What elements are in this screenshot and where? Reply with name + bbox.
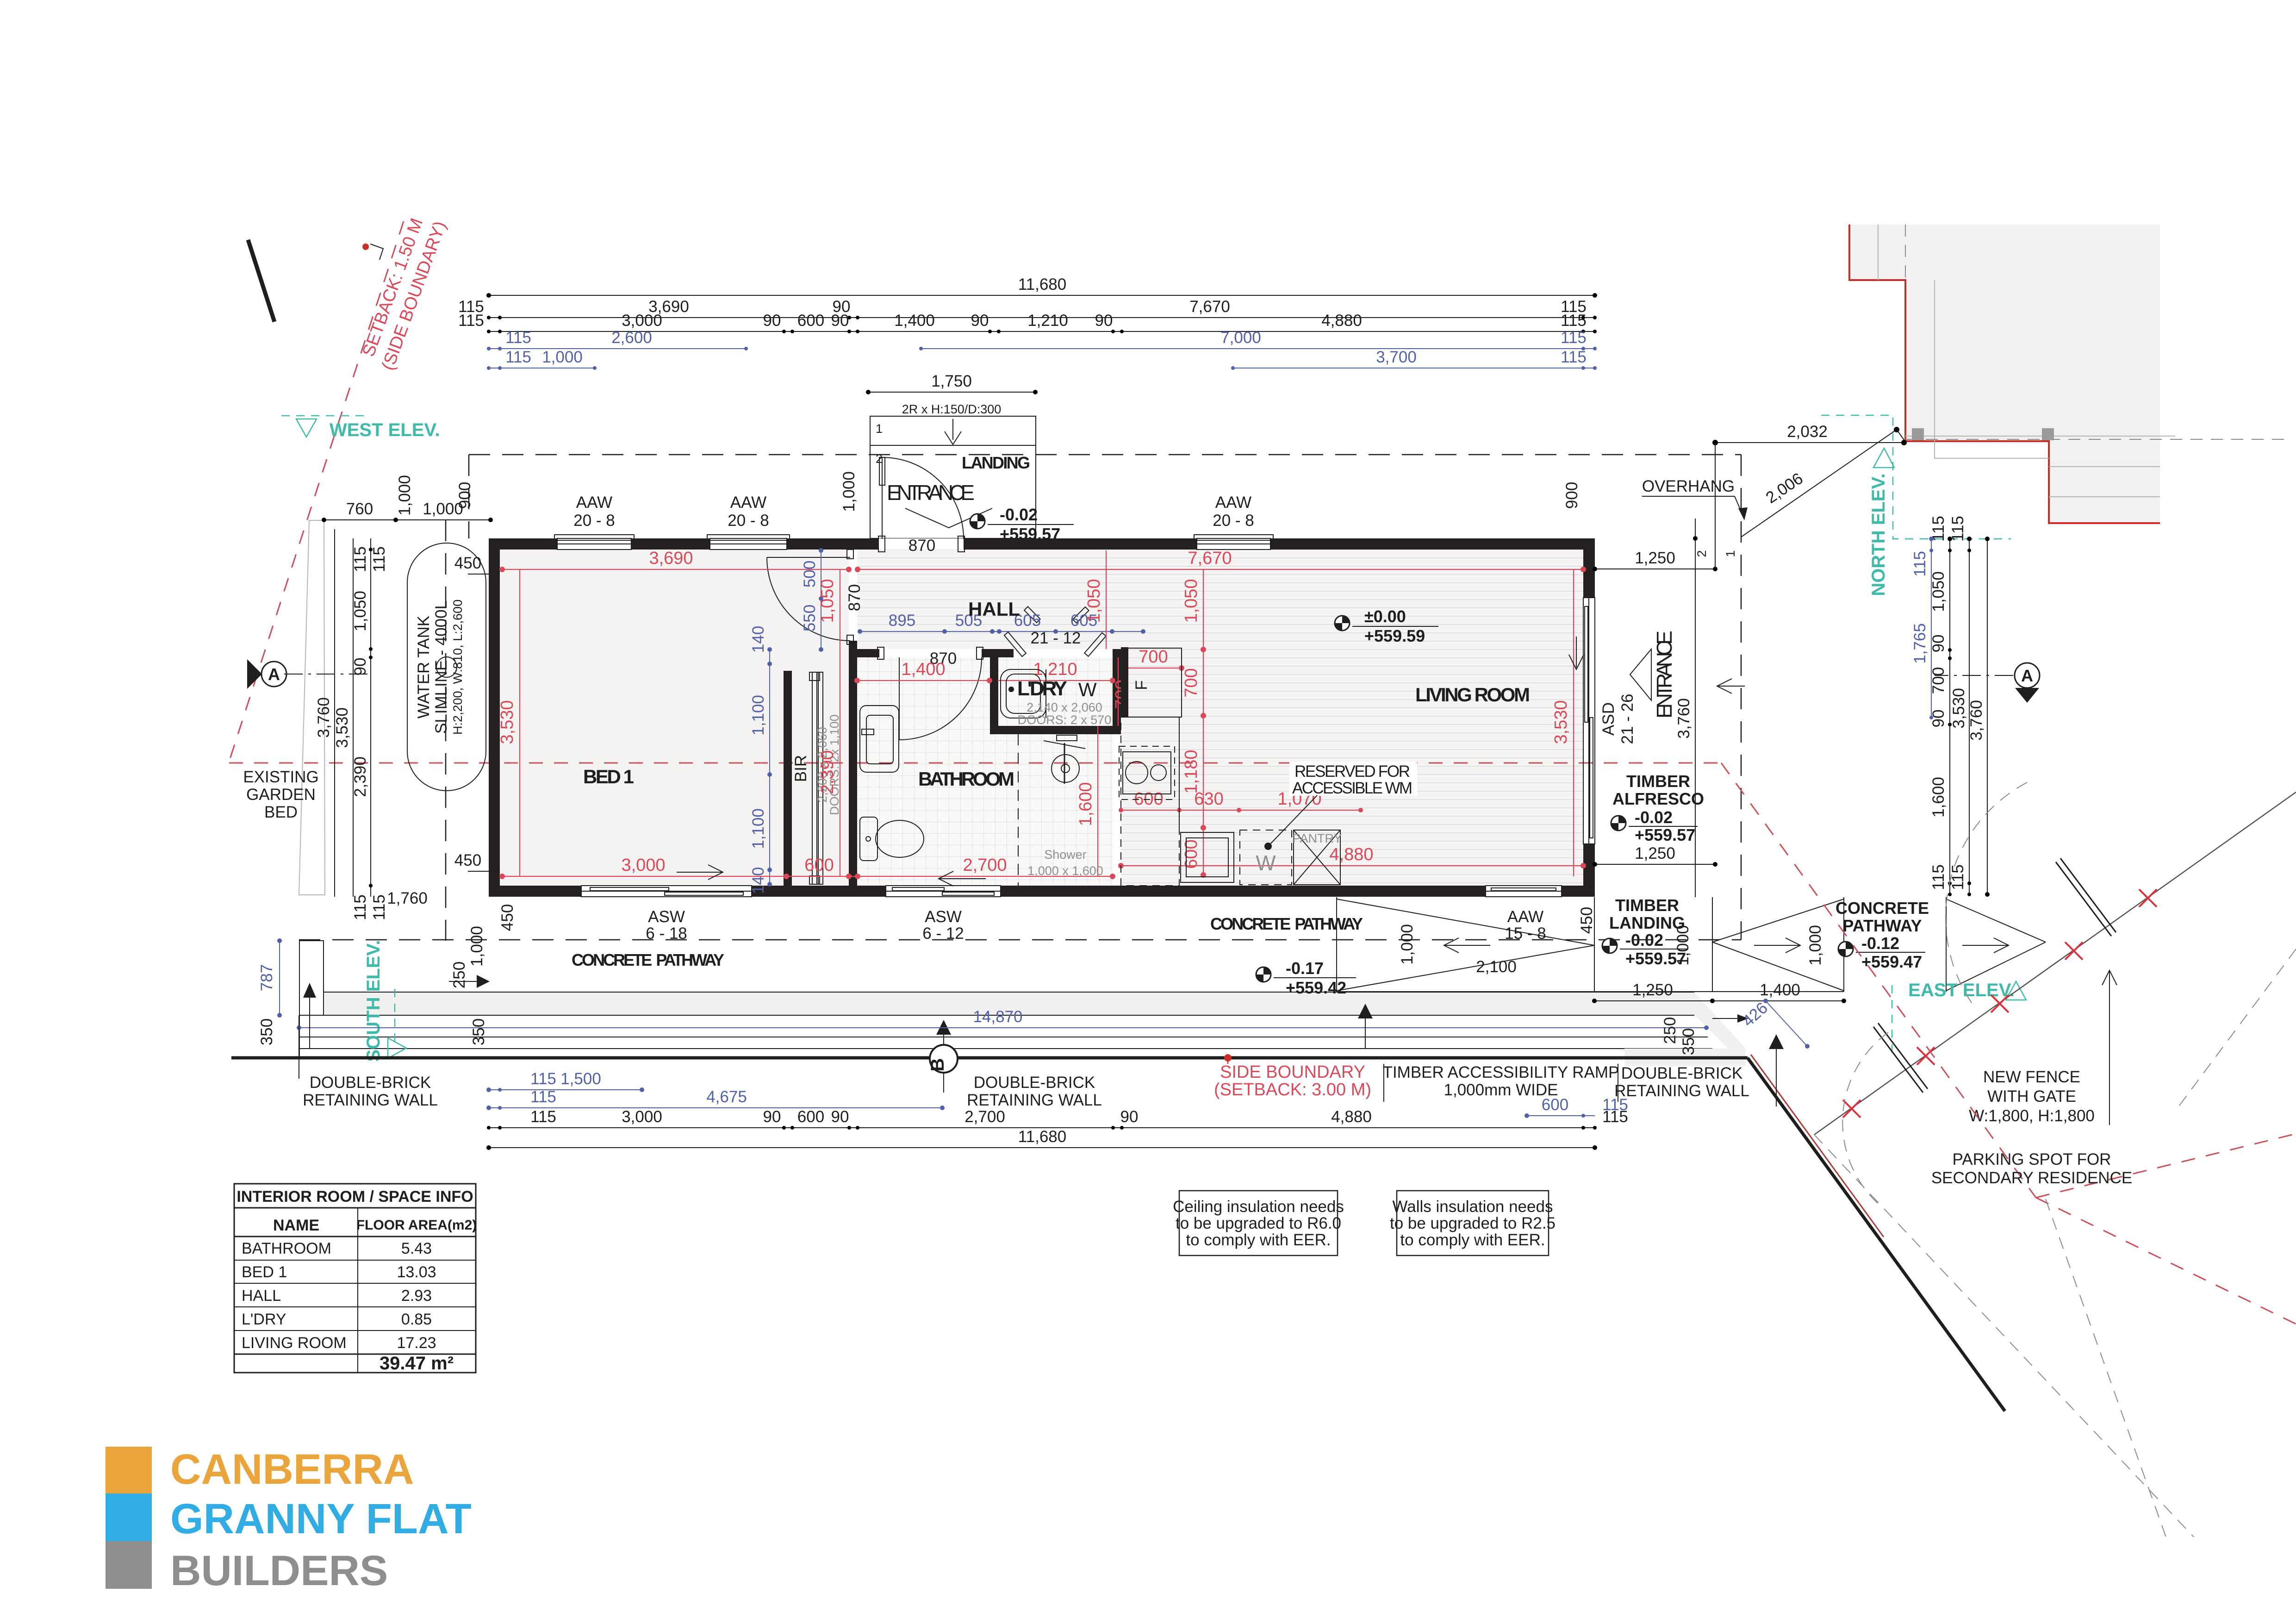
svg-text:2,390: 2,390 (351, 756, 369, 797)
svg-text:to comply with EER.: to comply with EER. (1186, 1231, 1331, 1249)
svg-text:11,680: 11,680 (1018, 275, 1066, 294)
svg-text:LIVING ROOM: LIVING ROOM (1415, 684, 1530, 706)
svg-text:600: 600 (1542, 1096, 1568, 1114)
svg-text:CONCRETE: CONCRETE (1836, 899, 1929, 918)
svg-text:INTERIOR ROOM / SPACE INFO: INTERIOR ROOM / SPACE INFO (236, 1188, 473, 1206)
svg-text:Ceiling insulation needs: Ceiling insulation needs (1173, 1198, 1344, 1216)
svg-text:11,680: 11,680 (1018, 1128, 1066, 1146)
svg-text:2: 2 (1695, 550, 1709, 557)
svg-text:250: 250 (1661, 1017, 1679, 1044)
svg-text:PARKING SPOT FOR: PARKING SPOT FOR (1953, 1150, 2111, 1168)
svg-text:1,765: 1,765 (1911, 623, 1929, 664)
svg-text:2,390: 2,390 (818, 750, 837, 794)
svg-text:1,210: 1,210 (1027, 312, 1068, 330)
svg-text:3,700: 3,700 (1376, 348, 1417, 366)
svg-text:600: 600 (797, 312, 824, 330)
svg-text:BED 1: BED 1 (583, 766, 634, 787)
svg-text:TIMBER: TIMBER (1626, 772, 1690, 791)
svg-text:115: 115 (1911, 551, 1929, 577)
svg-text:350: 350 (258, 1018, 276, 1045)
svg-text:ASW: ASW (925, 908, 962, 926)
svg-text:W:1,800, H:1,800: W:1,800, H:1,800 (1969, 1107, 2095, 1125)
svg-text:17.23: 17.23 (397, 1334, 436, 1352)
svg-text:1,000: 1,000 (423, 500, 463, 518)
svg-text:6 - 12: 6 - 12 (922, 924, 964, 943)
svg-text:1,400: 1,400 (901, 660, 945, 679)
svg-text:450: 450 (454, 554, 481, 572)
svg-text:870: 870 (846, 584, 864, 611)
svg-text:250: 250 (450, 962, 468, 988)
svg-text:115: 115 (1561, 329, 1587, 347)
svg-text:90: 90 (1095, 312, 1113, 330)
svg-text:2,700: 2,700 (964, 1108, 1005, 1126)
svg-text:4,880: 4,880 (1321, 312, 1362, 330)
svg-text:600: 600 (1182, 839, 1201, 868)
svg-text:350: 350 (1680, 1028, 1698, 1055)
svg-text:3,530: 3,530 (333, 707, 351, 748)
svg-text:1,180: 1,180 (1182, 750, 1201, 793)
svg-text:7,670: 7,670 (1189, 298, 1230, 316)
svg-text:A: A (268, 665, 280, 684)
svg-text:NAME: NAME (273, 1217, 319, 1234)
svg-text:3,760: 3,760 (1967, 700, 1985, 741)
svg-text:LIVING ROOM: LIVING ROOM (242, 1334, 347, 1352)
svg-text:90: 90 (831, 1108, 849, 1126)
svg-text:L'DRY: L'DRY (1017, 677, 1067, 700)
svg-text:TIMBER ACCESSIBILITY RAMP: TIMBER ACCESSIBILITY RAMP (1383, 1063, 1619, 1081)
svg-text:TIMBER: TIMBER (1615, 896, 1679, 915)
svg-text:0.85: 0.85 (401, 1311, 432, 1328)
svg-text:3,530: 3,530 (498, 700, 517, 744)
svg-text:-0.12: -0.12 (1861, 934, 1899, 953)
svg-text:LANDING: LANDING (962, 453, 1030, 472)
svg-text:1,400: 1,400 (894, 312, 935, 330)
svg-text:GRANNY FLAT: GRANNY FLAT (170, 1495, 472, 1543)
svg-text:115: 115 (505, 329, 531, 347)
svg-text:1,760: 1,760 (387, 889, 428, 907)
svg-text:3,760: 3,760 (315, 697, 333, 738)
svg-text:115: 115 (1949, 516, 1967, 542)
svg-text:CANBERRA: CANBERRA (170, 1446, 414, 1493)
svg-text:DOUBLE-BRICK: DOUBLE-BRICK (974, 1074, 1095, 1092)
svg-text:90: 90 (351, 658, 369, 676)
svg-text:3,690: 3,690 (649, 549, 693, 568)
svg-text:90: 90 (763, 1108, 781, 1126)
svg-text:700: 700 (1139, 647, 1168, 667)
svg-text:1,100: 1,100 (749, 695, 767, 736)
svg-text:SLIMLINE - 4000L: SLIMLINE - 4000L (432, 600, 450, 734)
svg-text:DOORS: 2 x 570: DOORS: 2 x 570 (1018, 713, 1112, 727)
svg-text:450: 450 (1578, 907, 1596, 934)
svg-text:7,000: 7,000 (1220, 329, 1261, 347)
svg-text:RESERVED FOR: RESERVED FOR (1294, 762, 1410, 781)
svg-text:HALL: HALL (242, 1287, 281, 1305)
svg-text:3,530: 3,530 (1950, 688, 1968, 729)
svg-text:1,250: 1,250 (1635, 844, 1675, 862)
svg-text:600: 600 (797, 1108, 824, 1126)
svg-text:1,600: 1,600 (1076, 782, 1095, 826)
svg-text:90: 90 (971, 312, 989, 330)
svg-text:AAW: AAW (576, 493, 612, 512)
svg-text:115: 115 (351, 546, 369, 572)
svg-text:115: 115 (1561, 312, 1587, 330)
svg-text:700: 700 (1182, 668, 1201, 697)
svg-text:CONCRETE PATHWAY: CONCRETE PATHWAY (572, 950, 724, 969)
svg-text:550: 550 (801, 605, 819, 631)
svg-text:1,000: 1,000 (542, 348, 583, 366)
svg-text:1,250: 1,250 (1632, 981, 1673, 999)
svg-text:760: 760 (346, 500, 373, 518)
svg-text:RETAINING WALL: RETAINING WALL (967, 1091, 1102, 1109)
svg-text:1,000: 1,000 (396, 475, 414, 516)
svg-text:1,600: 1,600 (1929, 777, 1948, 818)
svg-text:90: 90 (1929, 635, 1948, 653)
svg-text:BATHROOM: BATHROOM (918, 768, 1014, 790)
svg-text:AAW: AAW (1507, 908, 1543, 926)
svg-text:HALL: HALL (968, 598, 1020, 620)
svg-text:115: 115 (1929, 864, 1948, 890)
svg-text:+559.42: +559.42 (1286, 978, 1346, 997)
svg-text:+559.59: +559.59 (1364, 626, 1425, 645)
svg-text:W: W (1256, 851, 1276, 875)
svg-text:1,050: 1,050 (818, 579, 837, 623)
svg-text:ALFRESCO: ALFRESCO (1612, 789, 1704, 808)
svg-text:1,750: 1,750 (931, 372, 972, 390)
svg-text:1,500: 1,500 (560, 1070, 601, 1088)
svg-text:115: 115 (370, 546, 388, 572)
svg-text:20 - 8: 20 - 8 (1213, 512, 1254, 530)
svg-text:1,210: 1,210 (1033, 660, 1077, 679)
svg-text:-0.02: -0.02 (1625, 931, 1663, 949)
svg-text:115: 115 (505, 348, 531, 366)
svg-text:1,050: 1,050 (1182, 579, 1201, 623)
svg-text:1,000: 1,000 (840, 471, 858, 512)
svg-text:AAW: AAW (1215, 493, 1251, 512)
svg-text:115: 115 (351, 894, 369, 920)
svg-text:14,870: 14,870 (973, 1008, 1022, 1026)
svg-text:WATER TANK: WATER TANK (415, 616, 433, 718)
svg-text:140: 140 (749, 867, 767, 894)
svg-text:NEW FENCE: NEW FENCE (1983, 1068, 2080, 1086)
svg-text:to comply with EER.: to comply with EER. (1400, 1231, 1545, 1249)
svg-text:2,032: 2,032 (1787, 423, 1828, 441)
svg-text:15 - 8: 15 - 8 (1505, 924, 1546, 943)
svg-text:SIDE BOUNDARY: SIDE BOUNDARY (1220, 1062, 1365, 1082)
svg-text:21 - 26: 21 - 26 (1618, 694, 1636, 744)
svg-text:1,400: 1,400 (1760, 981, 1800, 999)
svg-text:20 - 8: 20 - 8 (728, 512, 769, 530)
svg-text:Shower: Shower (1044, 848, 1087, 862)
svg-text:1,000: 1,000 (1398, 924, 1416, 965)
svg-text:90: 90 (763, 312, 781, 330)
svg-text:DOUBLE-BRICK: DOUBLE-BRICK (310, 1074, 431, 1092)
svg-text:NORTH ELEV.: NORTH ELEV. (1868, 473, 1889, 596)
svg-text:H:2,200, W:810, L:2,600: H:2,200, W:810, L:2,600 (451, 600, 465, 735)
svg-text:L'DRY: L'DRY (242, 1311, 286, 1328)
svg-text:630: 630 (1194, 789, 1223, 809)
svg-text:350: 350 (470, 1018, 488, 1045)
svg-text:BED: BED (264, 803, 298, 821)
svg-text:3,000: 3,000 (621, 856, 665, 875)
svg-text:3,000: 3,000 (622, 1108, 662, 1126)
svg-text:4,675: 4,675 (706, 1088, 747, 1106)
svg-text:PATHWAY: PATHWAY (1842, 916, 1922, 935)
svg-text:ASW: ASW (648, 908, 685, 926)
svg-text:1,000mm WIDE: 1,000mm WIDE (1444, 1081, 1558, 1099)
svg-text:(SETBACK: 3.00 M): (SETBACK: 3.00 M) (1214, 1080, 1371, 1099)
svg-text:115: 115 (458, 312, 484, 330)
svg-text:WITH GATE: WITH GATE (1987, 1087, 2076, 1106)
svg-text:ACCESSIBLE WM: ACCESSIBLE WM (1292, 779, 1412, 797)
svg-text:1,100: 1,100 (749, 808, 767, 849)
svg-text:1,000: 1,000 (1674, 925, 1692, 966)
svg-text:+559.57: +559.57 (1000, 525, 1060, 543)
svg-text:39.47 m²: 39.47 m² (380, 1353, 454, 1374)
svg-text:3,760: 3,760 (1675, 698, 1693, 739)
svg-text:1,050: 1,050 (1084, 579, 1104, 623)
svg-text:ENTRANCE: ENTRANCE (1652, 631, 1676, 718)
svg-text:7,670: 7,670 (1188, 549, 1232, 568)
svg-text:OVERHANG: OVERHANG (1642, 477, 1735, 495)
svg-text:A: A (2021, 666, 2033, 685)
svg-text:RETAINING WALL: RETAINING WALL (1614, 1082, 1749, 1100)
svg-text:GARDEN: GARDEN (246, 786, 316, 804)
svg-text:Walls insulation needs: Walls insulation needs (1393, 1198, 1553, 1216)
svg-text:115: 115 (530, 1070, 556, 1088)
svg-text:EXISTING: EXISTING (243, 768, 318, 786)
svg-text:BATHROOM: BATHROOM (242, 1240, 331, 1257)
svg-text:PANTRY: PANTRY (1292, 831, 1342, 845)
svg-text:450: 450 (454, 851, 481, 869)
svg-text:787: 787 (258, 964, 276, 991)
svg-text:AAW: AAW (730, 493, 766, 512)
svg-text:450: 450 (498, 904, 516, 931)
svg-text:ASD: ASD (1599, 702, 1618, 736)
svg-text:2,700: 2,700 (963, 856, 1007, 875)
svg-text:1,000: 1,000 (1806, 925, 1824, 966)
svg-text:1,050: 1,050 (1929, 571, 1948, 612)
svg-text:DOUBLE-BRICK: DOUBLE-BRICK (1621, 1064, 1743, 1082)
svg-text:13.03: 13.03 (397, 1263, 436, 1281)
svg-text:115: 115 (530, 1108, 556, 1126)
svg-text:BUILDERS: BUILDERS (170, 1547, 388, 1594)
svg-text:1,050: 1,050 (351, 591, 369, 631)
svg-text:2.93: 2.93 (401, 1287, 432, 1305)
svg-text:115: 115 (1602, 1096, 1628, 1114)
svg-text:2R x H:150/D:300: 2R x H:150/D:300 (902, 402, 1002, 416)
svg-text:2,100: 2,100 (1476, 958, 1517, 976)
svg-text:2,140 x 2,060: 2,140 x 2,060 (1027, 700, 1102, 714)
svg-text:to be upgraded to R2.5: to be upgraded to R2.5 (1390, 1214, 1556, 1232)
svg-text:115: 115 (530, 1088, 556, 1106)
svg-text:115: 115 (1561, 348, 1587, 366)
svg-text:90: 90 (831, 312, 849, 330)
svg-text:3,530: 3,530 (1551, 700, 1571, 744)
svg-text:700: 700 (1929, 667, 1948, 694)
svg-text:870: 870 (908, 537, 935, 555)
svg-text:500: 500 (801, 561, 819, 587)
svg-text:140: 140 (749, 626, 767, 653)
svg-text:1,000: 1,000 (468, 926, 486, 967)
svg-text:SOUTH ELEV.: SOUTH ELEV. (363, 940, 384, 1062)
svg-text:BED 1: BED 1 (242, 1263, 287, 1281)
svg-text:20 - 8: 20 - 8 (573, 512, 615, 530)
svg-text:90: 90 (1120, 1108, 1139, 1126)
svg-text:1,000 x 1,600: 1,000 x 1,600 (1027, 864, 1103, 878)
svg-text:1: 1 (1724, 550, 1737, 557)
svg-text:BIR: BIR (792, 755, 810, 782)
svg-text:4,880: 4,880 (1331, 1108, 1372, 1126)
svg-text:WEST ELEV.: WEST ELEV. (330, 420, 440, 440)
svg-text:115: 115 (370, 894, 388, 920)
svg-text:5.43: 5.43 (401, 1240, 432, 1257)
svg-text:4,880: 4,880 (1329, 845, 1373, 864)
svg-text:±0.00: ±0.00 (1364, 607, 1406, 626)
svg-text:EAST ELEV.: EAST ELEV. (1908, 980, 2015, 1000)
svg-text:W: W (1078, 679, 1097, 700)
svg-text:2,600: 2,600 (611, 329, 652, 347)
svg-text:6 - 18: 6 - 18 (646, 924, 687, 943)
svg-text:FLOOR AREA(m2): FLOOR AREA(m2) (356, 1218, 477, 1233)
svg-text:CONCRETE PATHWAY: CONCRETE PATHWAY (1210, 914, 1363, 933)
svg-text:3,000: 3,000 (622, 312, 662, 330)
svg-text:900: 900 (1563, 482, 1581, 509)
svg-text:-0.02: -0.02 (1000, 505, 1038, 524)
svg-text:to be upgraded to R6.0: to be upgraded to R6.0 (1176, 1214, 1341, 1232)
svg-text:B: B (927, 1058, 948, 1072)
svg-text:115: 115 (1949, 864, 1967, 890)
svg-text:ENTRANCE: ENTRANCE (887, 481, 975, 505)
svg-text:-0.02: -0.02 (1635, 808, 1673, 827)
svg-text:1,250: 1,250 (1635, 549, 1675, 567)
svg-text:-0.17: -0.17 (1286, 959, 1324, 978)
svg-text:895: 895 (889, 612, 915, 630)
svg-text:600: 600 (804, 856, 834, 875)
svg-text:F: F (1132, 680, 1151, 690)
svg-text:SECONDARY RESIDENCE: SECONDARY RESIDENCE (1931, 1169, 2132, 1187)
svg-text:+559.57: +559.57 (1635, 825, 1695, 844)
svg-text:1: 1 (876, 422, 883, 436)
svg-text:RETAINING WALL: RETAINING WALL (303, 1091, 438, 1109)
